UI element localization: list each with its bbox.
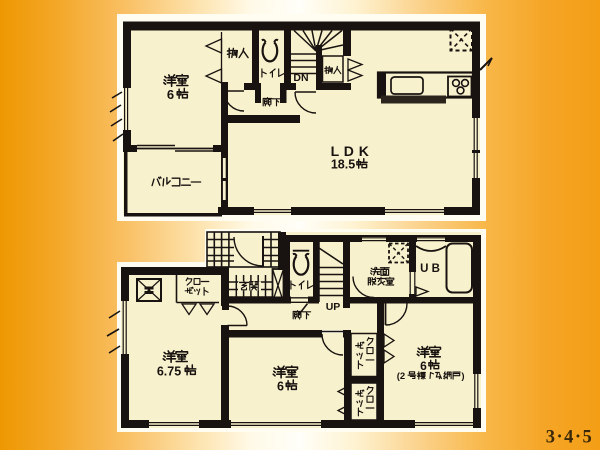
svg-text:UP: UP [326, 301, 341, 313]
svg-text:DN: DN [293, 72, 308, 84]
svg-text:U B: U B [420, 263, 440, 275]
svg-text:3·4·5: 3·4·5 [546, 428, 594, 448]
svg-text:6: 6 [420, 359, 427, 373]
svg-text:6: 6 [167, 87, 174, 102]
svg-text:): ) [461, 371, 464, 382]
svg-text:(2: (2 [397, 371, 405, 382]
svg-text:6: 6 [277, 380, 284, 394]
svg-text:18.5: 18.5 [331, 158, 355, 172]
svg-text:6.75: 6.75 [157, 365, 181, 379]
